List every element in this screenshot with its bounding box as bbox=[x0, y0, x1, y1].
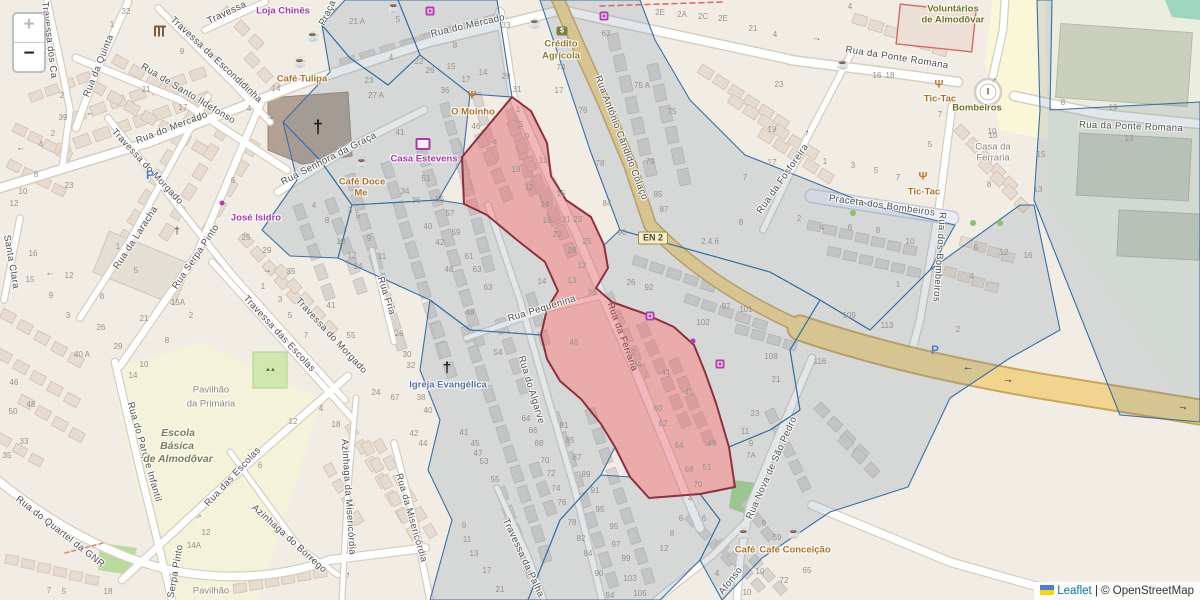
osm-link[interactable]: © OpenStreetMap bbox=[1101, 585, 1194, 597]
ukraine-flag-icon bbox=[1040, 585, 1054, 595]
zoom-in-button[interactable]: + bbox=[14, 14, 44, 43]
zoom-out-button[interactable]: − bbox=[14, 43, 44, 71]
map-canvas[interactable]: Rua do MercadoRua do MercadoTravessaTrav… bbox=[0, 0, 1200, 600]
leaflet-link[interactable]: Leaflet bbox=[1057, 585, 1092, 597]
attribution-separator: | bbox=[1095, 585, 1098, 597]
attribution-bar: Leaflet | © OpenStreetMap bbox=[1034, 582, 1200, 600]
map-base-svg bbox=[0, 0, 1200, 600]
zoom-control: + − bbox=[12, 12, 46, 73]
